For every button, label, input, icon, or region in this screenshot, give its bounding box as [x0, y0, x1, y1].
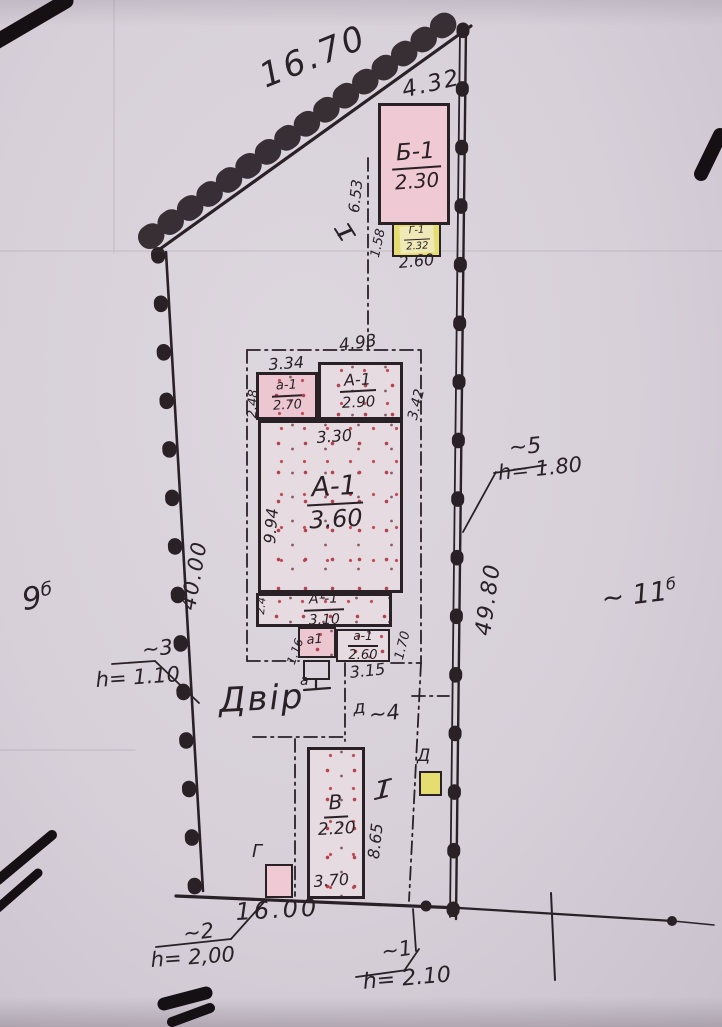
- fence-mark-2-number: ~2: [182, 920, 215, 945]
- fence-mark-2-height: h= 2,00: [150, 944, 236, 971]
- label-building-A1-rear: А¹-1 3.10: [292, 591, 355, 629]
- dim-334: 3.34: [268, 355, 305, 373]
- label-building-V: В 2.20: [311, 791, 361, 839]
- label-building-a1-right: а-1 2.60: [340, 630, 386, 663]
- boundary-bottom-tail: [673, 921, 714, 925]
- boundary-bottom-extension: [459, 908, 673, 921]
- plot-label-left: 9б: [20, 581, 55, 616]
- building-G-shed: [265, 864, 293, 898]
- dim-330: 3.30: [316, 428, 353, 446]
- label-building-B1: Б-1 2.30: [390, 138, 442, 194]
- dim-994: 9.94: [262, 508, 281, 545]
- label-building-D-shed: Д: [417, 748, 430, 765]
- dim-315: 3.15: [349, 661, 386, 681]
- yard-label: Двір: [218, 680, 305, 718]
- boundary-node-dot: [421, 901, 432, 912]
- site-plan: 16.70 4.32 40.00 49.80 16.00 Б-1 2.30 Г-…: [0, 0, 722, 1027]
- label-building-a1-upper-left: а-1 2.70: [261, 378, 313, 415]
- fence-mark-4-number: ~4: [368, 702, 401, 726]
- dim-boundary-bottom: 16.00: [235, 896, 320, 924]
- dim-370: 3.70: [313, 872, 350, 890]
- label-building-A1-main: А-1 3.60: [294, 470, 375, 535]
- fence-mark-3-height: h= 1.10: [95, 664, 181, 691]
- dim-865: 8.65: [366, 823, 386, 860]
- dim-653: 6.53: [347, 179, 365, 214]
- label-building-A1-upper: А-1 2.90: [327, 369, 389, 412]
- dim-24: 2.4: [255, 597, 267, 615]
- dim-248: 2.48: [246, 389, 260, 419]
- section-mark-top-lines: [335, 224, 355, 240]
- building-D-shed: [419, 771, 442, 796]
- fence-post-line: [551, 893, 555, 980]
- label-building-G-shed: Г: [252, 843, 262, 861]
- section-mark-bottom-lines: [375, 779, 391, 799]
- fence-mark-4-pre: д: [352, 699, 366, 718]
- fence-mark-1-number: ~1: [380, 938, 414, 963]
- label-building-a1-small: а1: [306, 633, 323, 647]
- boundary-corner-dot: [667, 916, 677, 926]
- fence-mark-3-number: ~3: [141, 637, 174, 661]
- dim-260-top: 2.60: [398, 252, 435, 271]
